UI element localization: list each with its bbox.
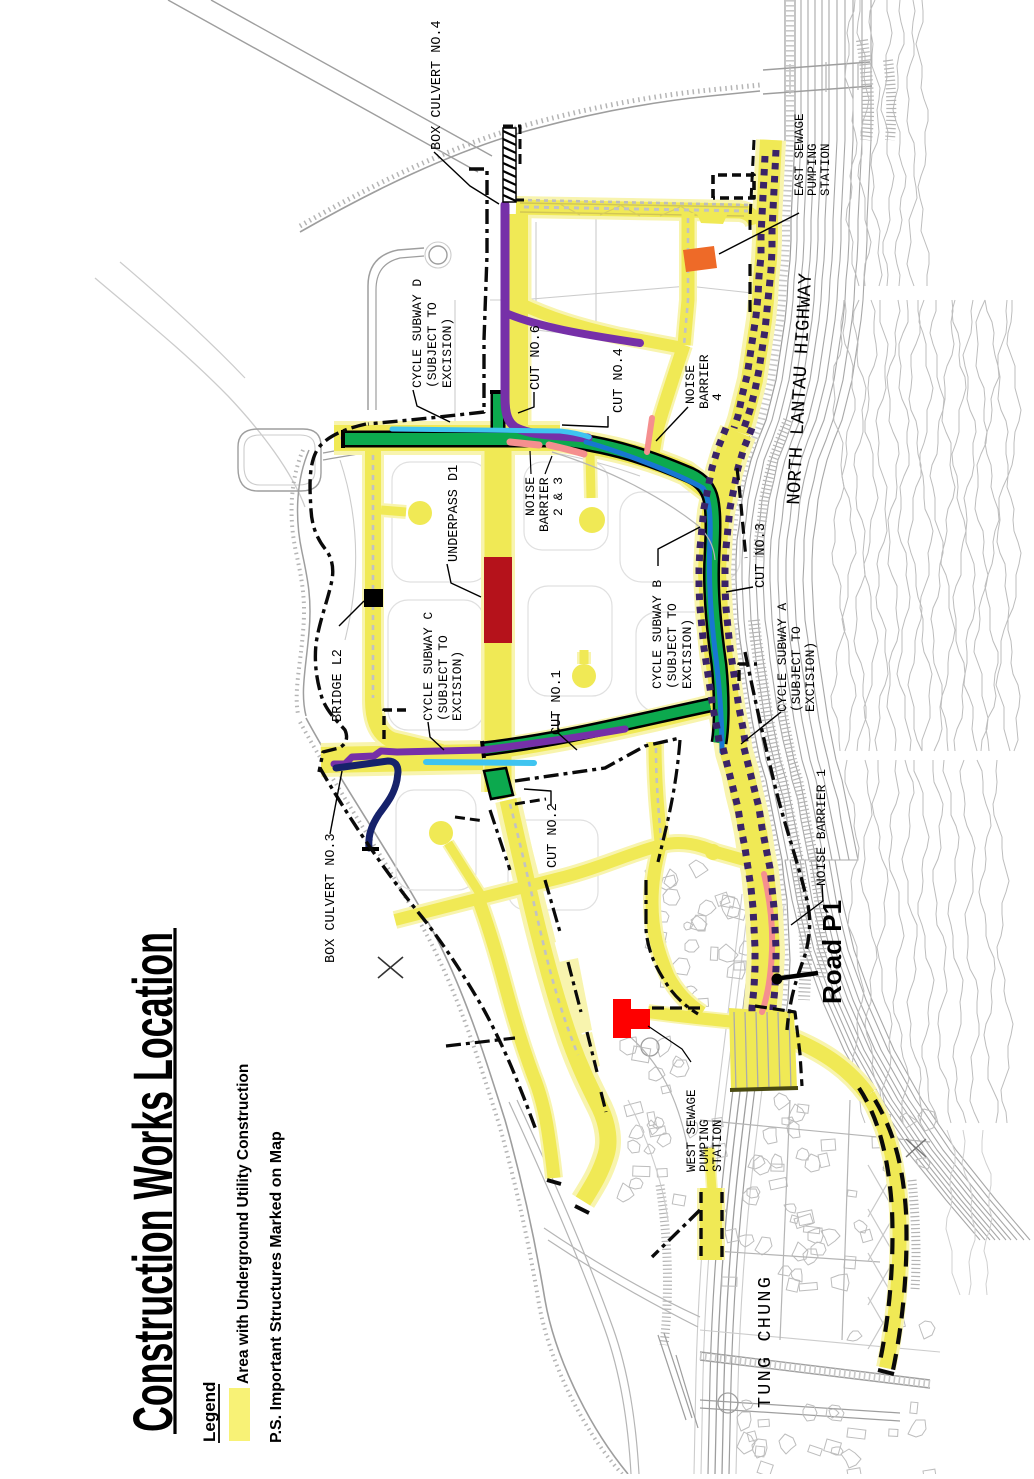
svg-text:TUNG CHUNG: TUNG CHUNG [755,1275,776,1408]
svg-text:P.S. Important Structures Mark: P.S. Important Structures Marked on Map [268,1131,285,1443]
svg-text:(SUBJECT TO: (SUBJECT TO [789,626,804,712]
svg-text:CUT NO.3: CUT NO.3 [754,523,769,588]
svg-text:2 & 3: 2 & 3 [551,477,566,516]
svg-text:STATION: STATION [711,1119,725,1172]
svg-text:CYCLE SUBWAY B: CYCLE SUBWAY B [650,580,665,689]
svg-text:EXCISION): EXCISION) [440,318,455,388]
svg-text:BOX CULVERT NO.3: BOX CULVERT NO.3 [324,833,339,963]
svg-text:EAST SEWAGE: EAST SEWAGE [793,113,807,196]
svg-text:4: 4 [710,393,725,401]
svg-text:WEST SEWAGE: WEST SEWAGE [685,1089,699,1172]
svg-text:UNDERPASS D1: UNDERPASS D1 [447,465,462,562]
svg-text:CUT NO.6: CUT NO.6 [529,325,544,390]
svg-text:CUT NO.2: CUT NO.2 [546,803,561,868]
svg-text:Legend: Legend [200,1382,219,1442]
svg-text:CUT NO.4: CUT NO.4 [612,348,627,413]
svg-text:(SUBJECT TO: (SUBJECT TO [425,302,440,388]
svg-text:NOISE: NOISE [683,365,698,404]
svg-text:EXCISION): EXCISION) [680,619,695,689]
svg-text:CYCLE SUBWAY C: CYCLE SUBWAY C [421,612,436,721]
svg-text:NOISE: NOISE [523,477,538,516]
svg-text:(SUBJECT TO: (SUBJECT TO [665,603,680,689]
svg-text:EXCISION): EXCISION) [803,642,818,712]
svg-text:BARRIER: BARRIER [537,477,552,532]
svg-text:PUMPING: PUMPING [698,1119,712,1172]
svg-text:PUMPING: PUMPING [806,143,820,196]
svg-text:EXCISION): EXCISION) [450,651,465,721]
svg-text:CYCLE SUBWAY A: CYCLE SUBWAY A [775,603,790,712]
svg-text:Area with Underground Utility: Area with Underground Utility Constructi… [235,1064,252,1384]
svg-text:STATION: STATION [819,143,833,196]
svg-text:BOX CULVERT NO.4: BOX CULVERT NO.4 [430,20,445,150]
svg-text:NOISE BARRIER 1: NOISE BARRIER 1 [814,769,829,886]
svg-text:BRIDGE L2: BRIDGE L2 [331,649,346,722]
svg-text:CUT NO.1: CUT NO.1 [550,670,565,735]
svg-text:Road P1: Road P1 [817,900,847,1004]
svg-text:(SUBJECT TO: (SUBJECT TO [436,635,451,721]
svg-text:CYCLE SUBWAY D: CYCLE SUBWAY D [410,279,425,388]
